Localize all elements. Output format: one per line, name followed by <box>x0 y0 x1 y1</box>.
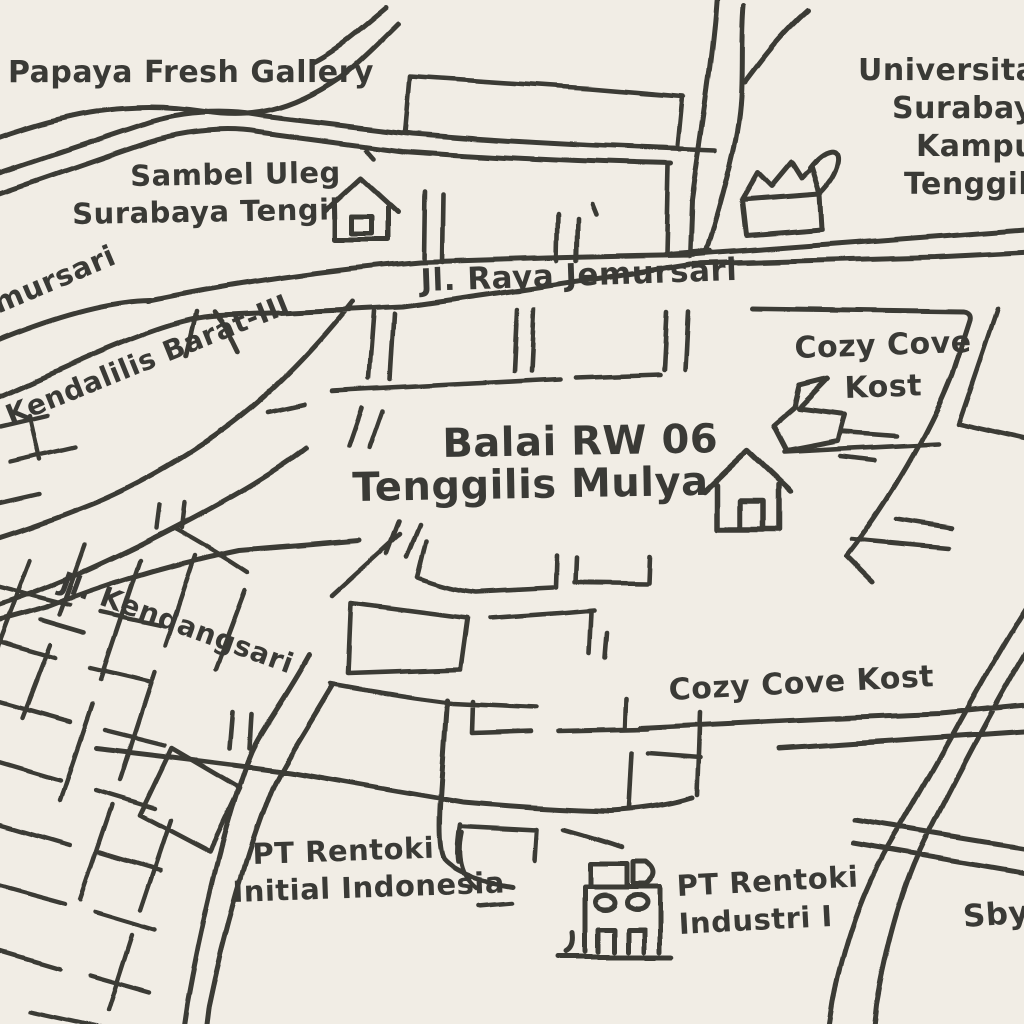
label-universitas-line2: Surabaya <box>892 94 1024 124</box>
label-balai-rw06-line1: Balai RW 06 <box>442 419 718 464</box>
label-sby: Sby <box>962 897 1024 933</box>
hand-drawn-neighborhood-map: Papaya Fresh Gallery Sambel Uleg Surabay… <box>0 0 1024 1024</box>
label-universitas-line1: Universitas <box>858 56 1024 86</box>
arrow-marker-icon <box>773 379 845 451</box>
label-universitas-line4: Tenggilis <box>904 170 1024 200</box>
label-sambel-uleg-line2: Surabaya Tengil <box>72 195 340 229</box>
factory-building-icon <box>558 862 672 957</box>
label-cozy-cove-kost-upper-line1: Cozy Cove <box>794 328 972 364</box>
label-sambel-uleg-line1: Sambel Uleg <box>130 158 341 191</box>
label-balai-rw06-line2: Tenggilis Mulya <box>352 462 709 508</box>
label-universitas-line3: Kampus <box>916 132 1024 162</box>
label-pt-rentoki-industri-line2: Industri I <box>678 902 833 939</box>
label-cozy-cove-kost-upper-line2: Kost <box>844 371 923 404</box>
label-papaya-fresh-gallery: Papaya Fresh Gallery <box>8 58 374 88</box>
open-box-building-icon <box>742 152 839 236</box>
label-pt-rentoki-initial-line1: PT Rentoki <box>252 834 435 869</box>
road-network <box>0 0 1024 1024</box>
